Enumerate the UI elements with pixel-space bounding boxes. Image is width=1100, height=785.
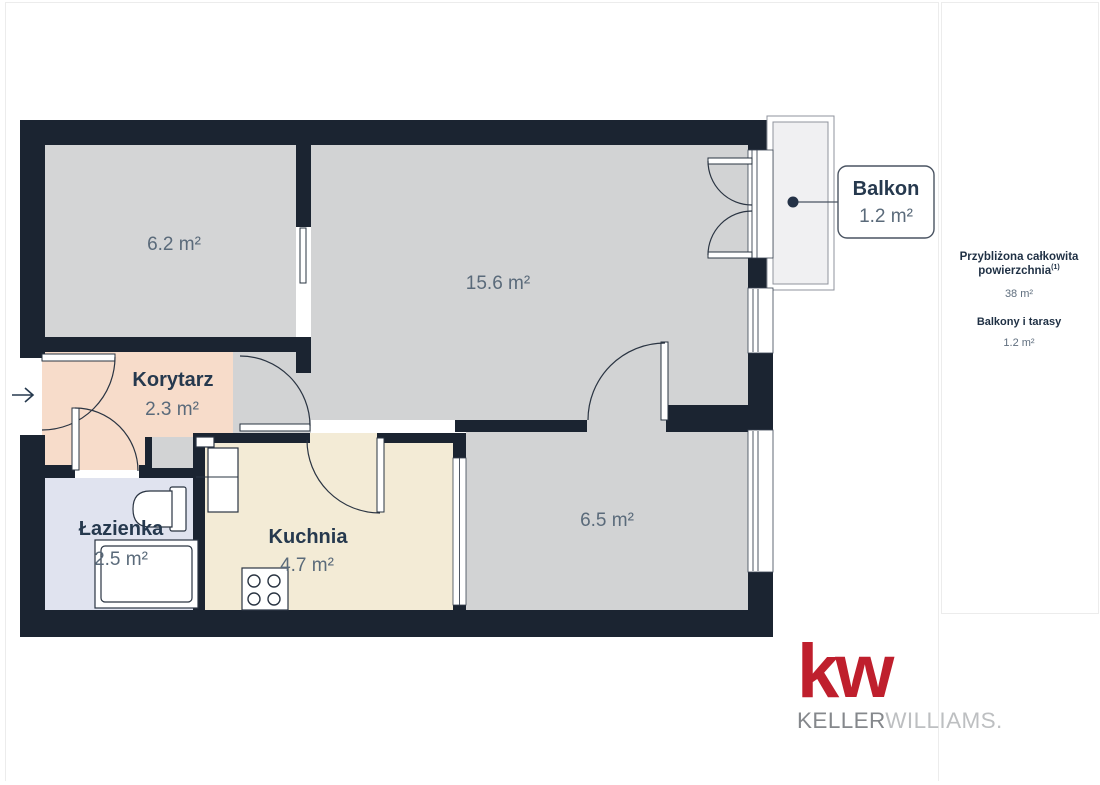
door-threshold-6-5 xyxy=(587,420,666,432)
total-area-heading-line1: Przybliżona całkowita xyxy=(960,251,1079,263)
window-living xyxy=(748,288,773,353)
corridor-area-label: 2.3 m² xyxy=(145,399,199,420)
kitchen-name-label: Kuchnia xyxy=(269,526,349,548)
summary-panel: Przybliżona całkowita powierzchnia(1) 38… xyxy=(941,250,1097,349)
balconies-label: Balkony i tarasy xyxy=(941,316,1097,328)
total-area-heading: Przybliżona całkowita powierzchnia(1) xyxy=(941,250,1097,279)
entrance-arrow-icon xyxy=(12,388,33,402)
kw-logo-mark: kw xyxy=(797,638,997,706)
total-area-heading-line2: powierzchnia xyxy=(978,265,1051,277)
balcony xyxy=(767,116,834,290)
footnote-marker: (1) xyxy=(1051,265,1060,272)
balconies-value: 1.2 m² xyxy=(941,337,1097,349)
corridor-alcove-floor xyxy=(152,437,193,468)
kitchen-area-label: 4.7 m² xyxy=(280,555,334,576)
corridor-shelf xyxy=(196,437,214,447)
total-area-value: 38 m² xyxy=(941,288,1097,300)
logo-williams-text: WILLIAMS xyxy=(885,708,996,733)
bathroom-area-label: 2.5 m² xyxy=(94,549,148,570)
callout-anchor-dot xyxy=(788,197,799,208)
kw-logo-wordmark: KELLERWILLIAMS. xyxy=(797,708,997,734)
keller-williams-logo: kw KELLERWILLIAMS. xyxy=(797,638,997,734)
balcony-area-label: 1.2 m² xyxy=(859,206,913,227)
logo-keller-text: KELLER xyxy=(797,708,885,733)
room-6-5-area-label: 6.5 m² xyxy=(580,510,634,531)
kitchen-door-threshold xyxy=(310,433,377,443)
room-6-2-area-label: 6.2 m² xyxy=(147,234,201,255)
page: Balkon 1.2 m² 6.2 m² 15.6 m² Korytarz 2.… xyxy=(0,0,1100,785)
bathroom-name-label: Łazienka xyxy=(79,518,164,540)
balcony-deck xyxy=(773,122,828,284)
logo-registered-mark: . xyxy=(996,708,1003,733)
sliding-door-6-2 xyxy=(300,228,306,283)
balcony-name-label: Balkon xyxy=(853,178,920,200)
window-room-6-5 xyxy=(748,430,773,572)
corridor-name-label: Korytarz xyxy=(132,369,213,391)
living-area-label: 15.6 m² xyxy=(466,273,530,294)
callout-box xyxy=(838,166,934,238)
